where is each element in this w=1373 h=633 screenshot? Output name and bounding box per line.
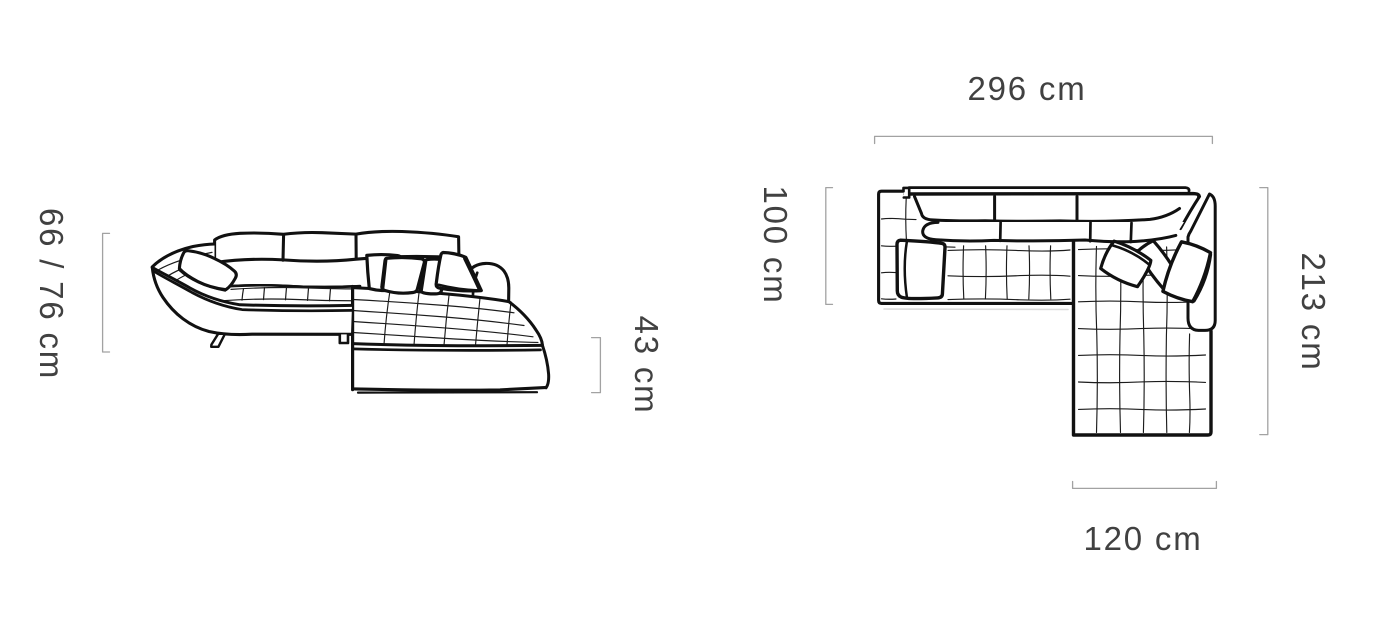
svg-text:100 cm: 100 cm	[757, 185, 794, 304]
svg-text:43 cm: 43 cm	[628, 316, 665, 415]
svg-text:120 cm: 120 cm	[1083, 520, 1202, 557]
svg-text:296 cm: 296 cm	[967, 70, 1086, 107]
svg-text:213 cm: 213 cm	[1295, 252, 1332, 371]
svg-text:66 / 76 cm: 66 / 76 cm	[33, 208, 70, 380]
